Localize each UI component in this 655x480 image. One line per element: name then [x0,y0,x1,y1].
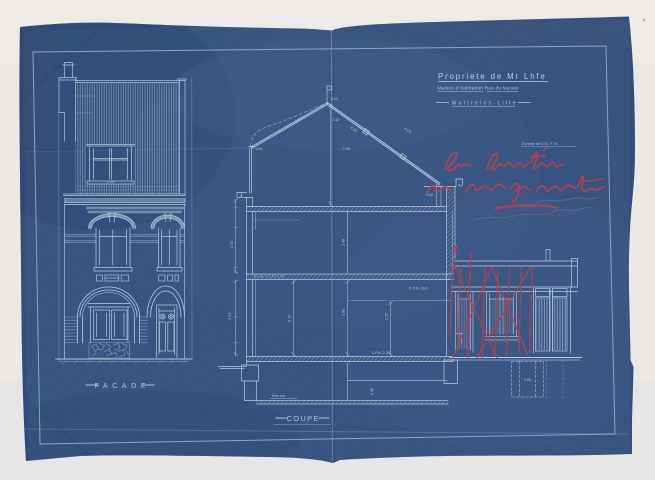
svg-text:1.40: 1.40 [370,388,374,395]
svg-text:C.P.N. 26.3: C.P.N. 26.3 [409,287,428,291]
svg-text:E.L.B. = C.P.I 1.10: E.L.B. = C.P.I 1.10 [254,275,284,279]
svg-text:Maison d'Habitation Rue du Ma: Maison d'Habitation Rue du Marais [438,86,519,91]
svg-text:5/08: 5/08 [256,147,263,151]
svg-text:COUPE: COUPE [287,414,319,423]
svg-text:Echelle de 0.01 P. M.: Echelle de 0.01 P. M. [522,141,558,146]
svg-text:Wattrelos-Lille: Wattrelos-Lille [452,101,516,107]
svg-text:7/08: 7/08 [343,147,350,151]
svg-text:2.60: 2.60 [342,309,346,316]
svg-text:Rez sol: Rez sol [272,394,285,398]
svg-text:0.13: 0.13 [331,97,338,101]
svg-text:Propriete de Mr Lhfe: Propriete de Mr Lhfe [438,72,546,81]
svg-text:3.10: 3.10 [288,315,292,322]
svg-text:2.10: 2.10 [333,118,340,122]
svg-text:4.30: 4.30 [107,179,116,184]
svg-text:2.20: 2.20 [385,313,389,320]
svg-text:3.00: 3.00 [230,241,234,248]
svg-text:2.60: 2.60 [524,378,531,382]
svg-text:2.68: 2.68 [342,239,346,246]
svg-text:L.P.N. 2.43: L.P.N. 2.43 [372,351,390,355]
svg-text:3.03: 3.03 [228,313,232,320]
